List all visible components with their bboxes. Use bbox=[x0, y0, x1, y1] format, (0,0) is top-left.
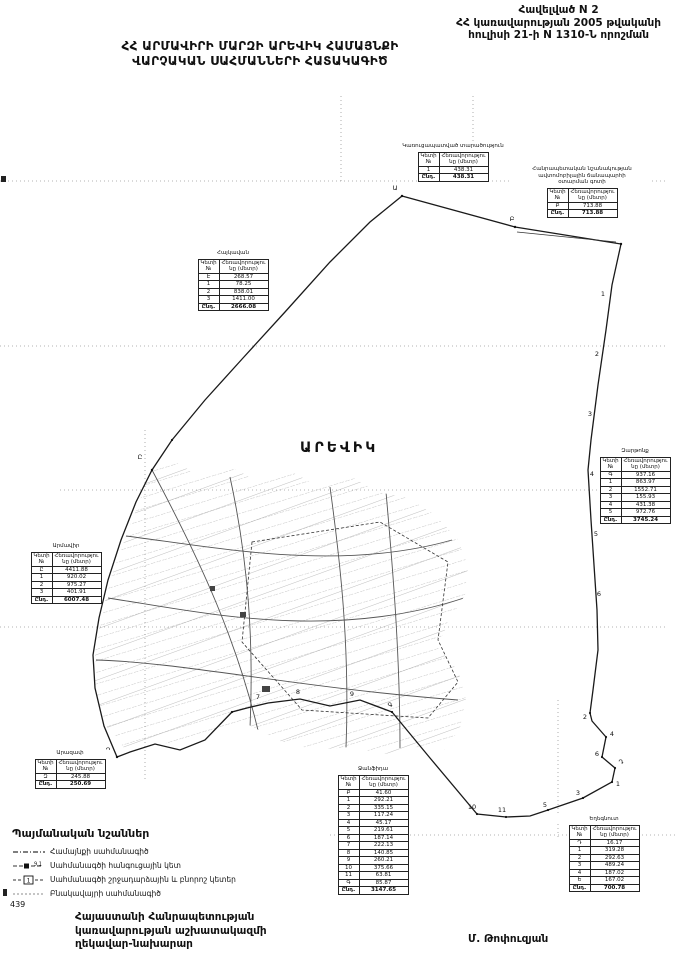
table-row: 445.17 bbox=[338, 819, 408, 827]
point-label: Ը bbox=[138, 453, 143, 461]
distance-table: Կետի №Հեռավորությունը (մետր)1438.31Ընդ.4… bbox=[418, 152, 489, 182]
table-row: Բ41.60 bbox=[338, 789, 408, 797]
table-row: 2838.01 bbox=[198, 288, 268, 296]
point-label: 6 bbox=[595, 750, 599, 758]
table-title: Եղեգնուտ bbox=[556, 816, 652, 823]
table-title: Ջանֆիդա bbox=[328, 766, 418, 773]
distance-table: Կետի №Հեռավորությունը (մետր)Զ245.88Ընդ.2… bbox=[35, 759, 106, 789]
signature-line-1: Հայաստանի Հանրապետության bbox=[75, 911, 267, 925]
point-label: 3 bbox=[576, 789, 580, 797]
table-row: 3117.24 bbox=[338, 812, 408, 820]
legend-item: 1Սահմանագծի շրջադարձային և բնորոշ կետեր bbox=[12, 872, 322, 886]
annex-line-1: Հավելված N 2 bbox=[456, 4, 661, 17]
table-row: 4187.02 bbox=[569, 869, 639, 877]
table-leader-line bbox=[517, 232, 616, 242]
boundary-table-left: ԱրմավիրԿետի №Հեռավորությունը (մետր)Ը4411… bbox=[24, 543, 108, 604]
table-row: 1920.02 bbox=[31, 574, 101, 582]
point-label: 7 bbox=[256, 693, 260, 701]
boundary-table-right: ԶարթոնքԿետի №Հեռավորությունը (մետր)Գ937.… bbox=[597, 448, 673, 524]
col-header-point: Կետի № bbox=[418, 152, 439, 166]
map-document-page: Հավելված N 2 ՀՀ կառավարության 2005 թվակա… bbox=[0, 0, 675, 956]
table-row: 5972.76 bbox=[600, 509, 670, 517]
point-label: 4 bbox=[590, 470, 594, 478]
boundary-table-bottom-right: ԵղեգնուտԿետի №Հեռավորությունը (մետր)Դ16.… bbox=[556, 816, 652, 892]
table-row: 6187.14 bbox=[338, 834, 408, 842]
table-row: 3401.91 bbox=[31, 589, 101, 597]
col-header-distance: Հեռավորությունը (մետր) bbox=[590, 825, 639, 839]
svg-text:9.1: 9.1 bbox=[34, 861, 42, 867]
table-row: 1863.97 bbox=[600, 479, 670, 487]
table-title: Հանրապետական նշանակությանավտոմոբիլային ճ… bbox=[512, 166, 652, 186]
point-label: 10 bbox=[468, 803, 476, 811]
table-row: 10375.66 bbox=[338, 864, 408, 872]
legend-item: Համայնքի սահմանագիծ bbox=[12, 844, 322, 858]
table-total-row: Ընդ.250.69 bbox=[35, 781, 105, 789]
point-label: 1 bbox=[616, 780, 620, 788]
title-line-2: ՎԱՐՉԱԿԱՆ ՍԱՀՄԱՆՆԵՐԻ ՀԱՏԱԿԱԳԻԾ bbox=[95, 54, 425, 69]
col-header-point: Կետի № bbox=[198, 259, 219, 273]
table-row: 1292.21 bbox=[338, 797, 408, 805]
col-header-distance: Հեռավորությունը (մետր) bbox=[568, 188, 617, 202]
legend-item: Բնակավայրի սահմանագիծ bbox=[12, 886, 322, 900]
table-total-row: Ընդ.700.78 bbox=[569, 884, 639, 892]
col-header-distance: Հեռավորությունը (մետր) bbox=[219, 259, 268, 273]
table-row: 5219.61 bbox=[338, 827, 408, 835]
table-total-row: Ընդ.713.88 bbox=[547, 210, 617, 218]
signature-block: Հայաստանի Հանրապետության կառավարության ա… bbox=[75, 911, 267, 952]
table-row: Գ85.87 bbox=[338, 879, 408, 887]
table-total-row: Ընդ.2666.08 bbox=[198, 303, 268, 311]
legend-items: Համայնքի սահմանագիծ9.1Սահմանագծի հանգուց… bbox=[12, 844, 322, 900]
table-row: 3489.24 bbox=[569, 862, 639, 870]
signature-line-2: կառավարության աշխատակազմի bbox=[75, 925, 267, 939]
table-title: Արազափ bbox=[28, 750, 112, 757]
table-row: 8140.85 bbox=[338, 849, 408, 857]
point-label: 3 bbox=[588, 410, 592, 418]
table-row: 1438.31 bbox=[418, 166, 488, 174]
distance-table: Կետի №Հեռավորությունը (մետր)Դ16.171319.2… bbox=[569, 825, 640, 893]
annex-header: Հավելված N 2 ՀՀ կառավարության 2005 թվակա… bbox=[456, 4, 661, 42]
boundary-table-top-middle: Կառուցապատված տարածությունԿետի №Հեռավորո… bbox=[398, 143, 508, 182]
boundary-table-bottom-middle: ՋանֆիդաԿետի №Հեռավորությունը (մետր)Բ41.6… bbox=[328, 766, 418, 895]
legend-label: Սահմանագծի շրջադարձային և բնորոշ կետեր bbox=[50, 875, 236, 884]
col-header-point: Կետի № bbox=[35, 759, 56, 773]
boundary-table-top-right: Հանրապետական նշանակությանավտոմոբիլային ճ… bbox=[512, 166, 652, 218]
table-total-row: Ընդ.3147.65 bbox=[338, 887, 408, 895]
table-total-row: Ընդ.6007.48 bbox=[31, 596, 101, 604]
table-row: 1163.81 bbox=[338, 872, 408, 880]
point-label: 8 bbox=[296, 688, 300, 696]
point-label: 5 bbox=[594, 530, 598, 538]
legend-item: 9.1Սահմանագծի հանգուցային կետ bbox=[12, 858, 322, 872]
table-title: Կառուցապատված տարածություն bbox=[398, 143, 508, 150]
community-name-label: ԱՐԵՎԻԿ bbox=[300, 440, 378, 456]
col-header-distance: Հեռավորությունը (մետր) bbox=[621, 457, 670, 471]
col-header-distance: Հեռավորությունը (մետր) bbox=[439, 152, 488, 166]
table-row: 3155.93 bbox=[600, 494, 670, 502]
col-header-distance: Հեռավորությունը (մետր) bbox=[359, 775, 408, 789]
distance-table: Կետի №Հեռավորությունը (մետր)Բ713.88Ընդ.7… bbox=[547, 188, 618, 218]
table-title: Արմավիր bbox=[24, 543, 108, 550]
table-title: Հայկավան bbox=[188, 250, 278, 257]
table-row: Ե167.02 bbox=[569, 877, 639, 885]
annex-line-2: ՀՀ կառավարության 2005 թվականի bbox=[456, 17, 661, 30]
point-label: 4 bbox=[610, 730, 614, 738]
table-total-row: Ընդ.3745.24 bbox=[600, 516, 670, 524]
parcel-mesh bbox=[80, 450, 480, 770]
point-label: 2 bbox=[583, 713, 587, 721]
margin-marks bbox=[1, 176, 7, 896]
table-row: 178.25 bbox=[198, 281, 268, 289]
table-row: 31411.00 bbox=[198, 296, 268, 304]
table-row: 1319.28 bbox=[569, 847, 639, 855]
table-row: 4431.38 bbox=[600, 501, 670, 509]
point-label: 1 bbox=[601, 290, 605, 298]
page-number: 439 bbox=[10, 900, 25, 909]
col-header-point: Կետի № bbox=[547, 188, 568, 202]
table-row: Զ245.88 bbox=[35, 773, 105, 781]
legend-label: Բնակավայրի սահմանագիծ bbox=[50, 889, 161, 898]
point-label: Գ bbox=[388, 701, 393, 709]
table-row: 2335.15 bbox=[338, 804, 408, 812]
point-label: Դ bbox=[619, 758, 624, 766]
distance-table: Կետի №Հեռավորությունը (մետր)Ը4411.881920… bbox=[31, 552, 102, 605]
table-row: 9260.21 bbox=[338, 857, 408, 865]
point-label: 9 bbox=[350, 690, 354, 698]
table-row: 2292.63 bbox=[569, 854, 639, 862]
table-row: 21552.71 bbox=[600, 486, 670, 494]
boundary-table-bottom-left: ԱրազափԿետի №Հեռավորությունը (մետր)Զ245.8… bbox=[28, 750, 112, 789]
point-label: Ա bbox=[393, 184, 398, 192]
col-header-point: Կետի № bbox=[31, 552, 52, 566]
legend-label: Սահմանագծի հանգուցային կետ bbox=[50, 861, 181, 870]
legend: Պայմանական նշաններ Համայնքի սահմանագիծ9.… bbox=[12, 827, 322, 900]
boundary-table-top-left: ՀայկավանԿետի №Հեռավորությունը (մետր)Է268… bbox=[188, 250, 278, 311]
point-label: 2 bbox=[595, 350, 599, 358]
col-header-point: Կետի № bbox=[600, 457, 621, 471]
distance-table: Կետի №Հեռավորությունը (մետր)Գ937.161863.… bbox=[600, 457, 671, 525]
point-label: 11 bbox=[498, 806, 506, 814]
distance-table: Կետի №Հեռավորությունը (մետր)Է268.57178.2… bbox=[198, 259, 269, 312]
table-row: Է268.57 bbox=[198, 273, 268, 281]
page-title: ՀՀ ԱՐՄԱՎԻՐԻ ՄԱՐԶԻ ԱՐԵՎԻԿ ՀԱՄԱՅՆՔԻ ՎԱՐՉԱԿ… bbox=[95, 39, 425, 69]
signatory-name: Մ. Թոփուզյան bbox=[468, 933, 548, 945]
signature-line-3: ղեկավար-նախարար bbox=[75, 938, 267, 952]
distance-table: Կետի №Հեռավորությունը (մետր)Բ41.601292.2… bbox=[338, 775, 409, 895]
table-row: 2975.27 bbox=[31, 581, 101, 589]
point-label: 6 bbox=[597, 590, 601, 598]
col-header-point: Կետի № bbox=[569, 825, 590, 839]
table-row: Բ713.88 bbox=[547, 202, 617, 210]
table-row: Դ16.17 bbox=[569, 839, 639, 847]
annex-line-3: հուլիսի 21-ի N 1310-Ն որոշման bbox=[456, 29, 661, 42]
col-header-distance: Հեռավորությունը (մետր) bbox=[52, 552, 101, 566]
legend-label: Համայնքի սահմանագիծ bbox=[50, 847, 149, 856]
table-row: Ը4411.88 bbox=[31, 566, 101, 574]
table-row: Գ937.16 bbox=[600, 471, 670, 479]
table-row: 7222.13 bbox=[338, 842, 408, 850]
col-header-distance: Հեռավորությունը (մետր) bbox=[56, 759, 105, 773]
legend-title: Պայմանական նշաններ bbox=[12, 827, 322, 840]
table-title: Զարթոնք bbox=[597, 448, 673, 455]
title-line-1: ՀՀ ԱՐՄԱՎԻՐԻ ՄԱՐԶԻ ԱՐԵՎԻԿ ՀԱՄԱՅՆՔԻ bbox=[95, 39, 425, 54]
col-header-point: Կետի № bbox=[338, 775, 359, 789]
table-total-row: Ընդ.438.31 bbox=[418, 174, 488, 182]
point-label: 5 bbox=[543, 801, 547, 809]
